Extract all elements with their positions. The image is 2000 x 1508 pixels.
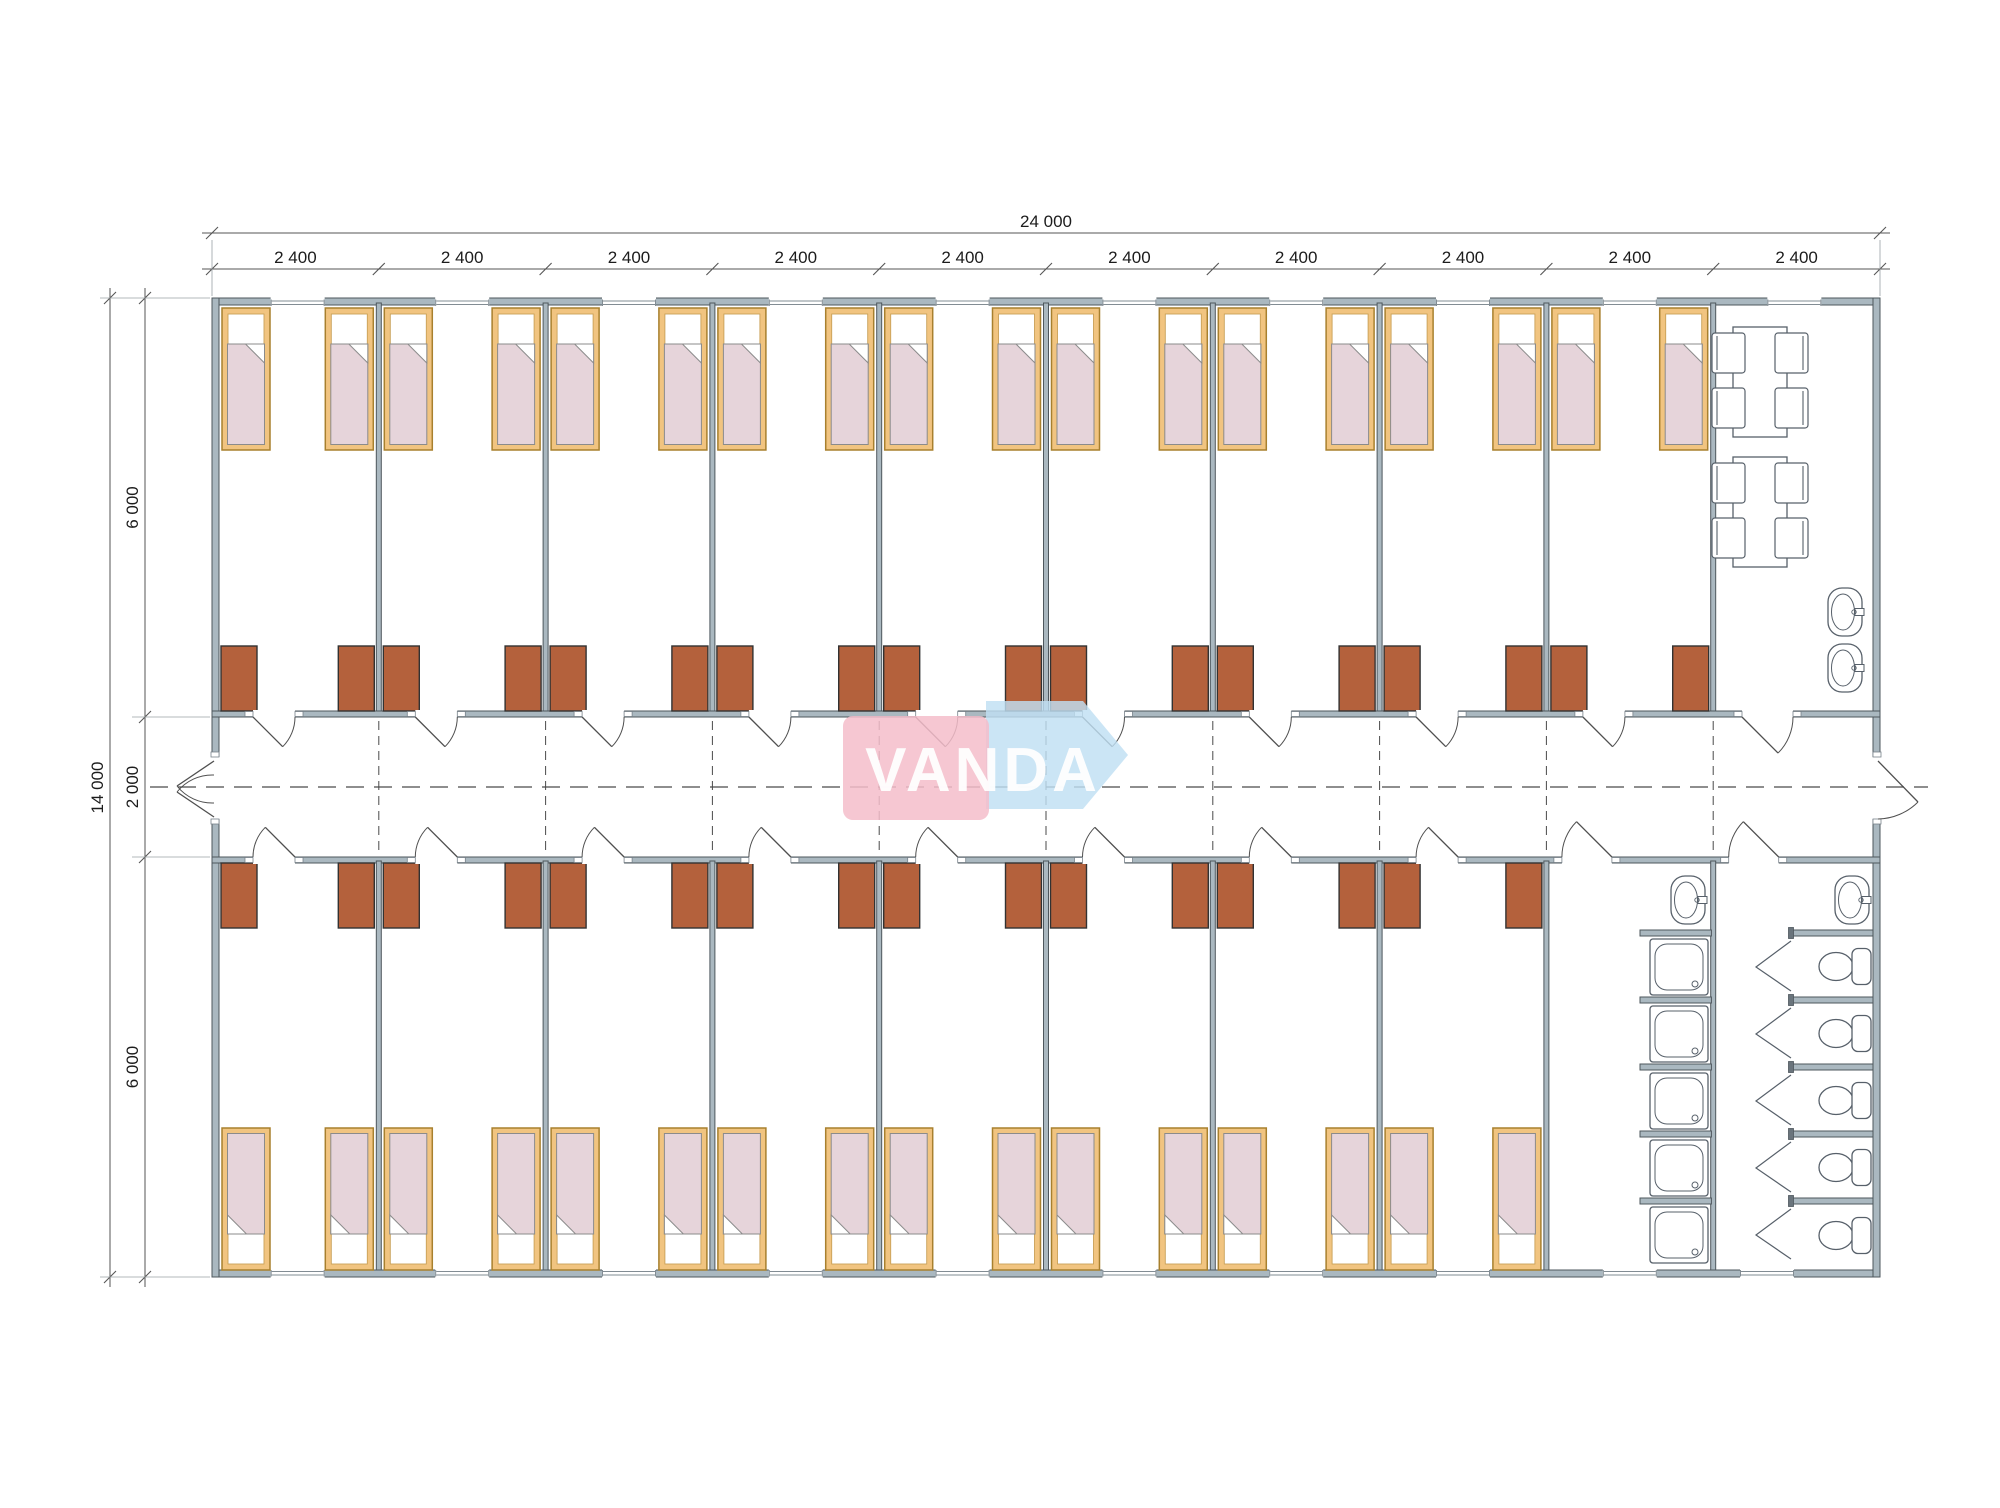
floor-plan-page: 24 0002 4002 4002 4002 4002 4002 4002 40…: [0, 0, 2000, 1508]
wardrobe: [550, 646, 586, 711]
sink: [1835, 876, 1871, 924]
window: [936, 297, 990, 307]
bed: [222, 1128, 270, 1270]
bed: [1326, 308, 1374, 450]
wardrobe: [505, 646, 541, 711]
chair: [1775, 463, 1808, 503]
bed: [718, 1128, 766, 1270]
room-door: [582, 710, 624, 747]
wardrobe: [1339, 863, 1375, 928]
watermark-logo: VANDA: [843, 701, 1128, 820]
shower-tray: [1650, 939, 1708, 995]
window: [602, 1269, 656, 1279]
toilet: [1819, 1150, 1871, 1186]
window: [271, 297, 325, 307]
shower-tray: [1650, 1140, 1708, 1196]
dim-overall-width: 24 000: [1020, 212, 1072, 231]
sink: [1671, 876, 1707, 924]
window: [1102, 1269, 1156, 1279]
sink: [1828, 588, 1864, 636]
room-door: [1075, 827, 1133, 864]
chair: [1775, 518, 1808, 558]
room-door: [1554, 822, 1620, 864]
bed: [885, 308, 933, 450]
wardrobe: [717, 863, 753, 928]
wardrobe: [221, 863, 257, 928]
window: [1767, 297, 1821, 307]
dim-height-segment: 2 000: [123, 766, 142, 809]
wardrobe: [1673, 646, 1709, 711]
wardrobe: [1217, 646, 1253, 711]
room-door: [1249, 710, 1291, 747]
shower-tray: [1650, 1006, 1708, 1062]
wardrobe: [884, 863, 920, 928]
room-door: [415, 710, 457, 747]
wardrobe: [1217, 863, 1253, 928]
window: [602, 297, 656, 307]
chair: [1775, 388, 1808, 428]
bed: [1159, 308, 1207, 450]
wardrobe: [1339, 646, 1375, 711]
room-door: [1241, 827, 1299, 864]
bed: [1493, 308, 1541, 450]
bed: [1385, 308, 1433, 450]
bed: [885, 1128, 933, 1270]
wardrobe: [672, 646, 708, 711]
bed: [1385, 1128, 1433, 1270]
bed: [325, 1128, 373, 1270]
wardrobe: [550, 863, 586, 928]
bed: [659, 1128, 707, 1270]
wardrobe: [338, 646, 374, 711]
room-door: [1408, 827, 1466, 864]
room-door: [245, 827, 303, 864]
bed: [1326, 1128, 1374, 1270]
window: [769, 297, 823, 307]
wardrobe: [1506, 646, 1542, 711]
dim-height-segment: 6 000: [123, 1046, 142, 1089]
wardrobe: [383, 646, 419, 711]
toilet: [1819, 949, 1871, 985]
bed: [551, 1128, 599, 1270]
bed: [222, 308, 270, 450]
bed: [826, 1128, 874, 1270]
dim-bay-width: 2 400: [441, 248, 484, 267]
dim-bay-width: 2 400: [1108, 248, 1151, 267]
shower-tray: [1650, 1073, 1708, 1129]
wardrobe: [1172, 863, 1208, 928]
bed: [1218, 1128, 1266, 1270]
wardrobe: [221, 646, 257, 711]
window: [435, 1269, 489, 1279]
dim-bay-width: 2 400: [1275, 248, 1318, 267]
chair: [1712, 388, 1745, 428]
dim-bay-width: 2 400: [775, 248, 818, 267]
wardrobe: [884, 646, 920, 711]
room-door: [253, 710, 295, 747]
watermark-text: VANDA: [865, 736, 1101, 805]
bed: [384, 1128, 432, 1270]
room-door: [1583, 710, 1625, 747]
window: [1603, 297, 1657, 307]
bed: [718, 308, 766, 450]
dim-overall-height: 14 000: [88, 762, 107, 814]
room-door: [574, 827, 632, 864]
wardrobe: [1506, 863, 1542, 928]
wardrobe: [1384, 646, 1420, 711]
wardrobe: [672, 863, 708, 928]
wardrobe: [338, 863, 374, 928]
corridor-exit-door-right: [1872, 752, 1918, 824]
dim-bay-width: 2 400: [1775, 248, 1818, 267]
chair: [1712, 463, 1745, 503]
bed: [1660, 308, 1708, 450]
bed: [1493, 1128, 1541, 1270]
bed: [826, 308, 874, 450]
dim-bay-width: 2 400: [1442, 248, 1485, 267]
bed: [384, 308, 432, 450]
wardrobe: [839, 863, 875, 928]
bed: [659, 308, 707, 450]
wardrobe: [383, 863, 419, 928]
window: [1269, 297, 1323, 307]
wardrobe: [1006, 863, 1042, 928]
bed: [1159, 1128, 1207, 1270]
sink: [1828, 644, 1864, 692]
room-door: [749, 710, 791, 747]
dim-bay-width: 2 400: [274, 248, 317, 267]
toilet: [1819, 1083, 1871, 1119]
wardrobe: [717, 646, 753, 711]
room-door: [908, 827, 966, 864]
room-door: [407, 827, 465, 864]
bed: [1052, 308, 1100, 450]
shower-tray: [1650, 1207, 1708, 1263]
wc-room: [1756, 876, 1873, 1259]
bed: [1052, 1128, 1100, 1270]
common-room: [1712, 327, 1864, 692]
bed: [1552, 308, 1600, 450]
window: [1740, 1269, 1794, 1279]
window: [1436, 297, 1490, 307]
window: [1102, 297, 1156, 307]
wardrobe: [1051, 863, 1087, 928]
bed: [325, 308, 373, 450]
window: [271, 1269, 325, 1279]
toilet: [1819, 1016, 1871, 1052]
wardrobe: [1551, 646, 1587, 711]
window: [435, 297, 489, 307]
window: [1269, 1269, 1323, 1279]
room-door: [1742, 710, 1793, 753]
window: [936, 1269, 990, 1279]
room-door: [1721, 822, 1787, 864]
wardrobe: [1172, 646, 1208, 711]
window: [1603, 1269, 1657, 1279]
chair: [1775, 333, 1808, 373]
dim-height-segment: 6 000: [123, 486, 142, 529]
bed: [492, 1128, 540, 1270]
washroom: [1640, 876, 1711, 1263]
wardrobe: [1384, 863, 1420, 928]
room-door: [741, 827, 799, 864]
floor-plan-canvas: 24 0002 4002 4002 4002 4002 4002 4002 40…: [0, 0, 2000, 1508]
wardrobe: [505, 863, 541, 928]
bed: [551, 308, 599, 450]
corridor-exit-door-left: [177, 752, 220, 824]
bed: [492, 308, 540, 450]
bed: [993, 308, 1041, 450]
toilet: [1819, 1218, 1871, 1254]
chair: [1712, 518, 1745, 558]
dim-bay-width: 2 400: [941, 248, 984, 267]
dim-bay-width: 2 400: [1609, 248, 1652, 267]
bed: [1218, 308, 1266, 450]
wardrobe: [839, 646, 875, 711]
bed: [993, 1128, 1041, 1270]
window: [1436, 1269, 1490, 1279]
chair: [1712, 333, 1745, 373]
window: [769, 1269, 823, 1279]
room-door: [1416, 710, 1458, 747]
dim-bay-width: 2 400: [608, 248, 651, 267]
